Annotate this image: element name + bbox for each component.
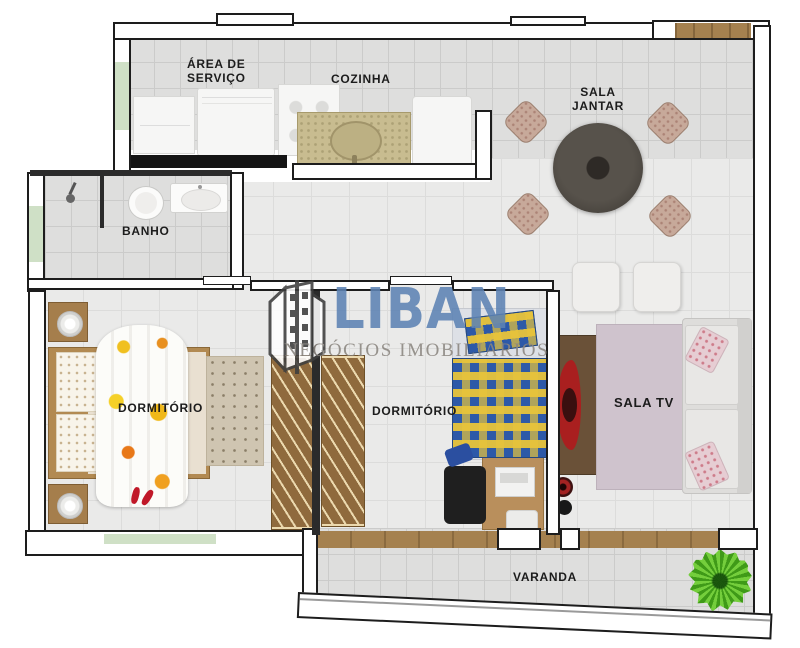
pouf-2 [633, 262, 681, 312]
granite-counter [297, 112, 411, 168]
office-chair [444, 466, 486, 524]
wall-banho-top [30, 170, 232, 176]
varanda-wall-nub-2 [560, 528, 580, 550]
nightstand-top [48, 302, 88, 342]
wardrobe-dorm2 [321, 355, 365, 527]
brand-text: LIBAN [332, 282, 511, 338]
wardrobe-dorm1 [271, 355, 313, 530]
varanda-wall-left [302, 528, 318, 602]
label-sala-tv: SALA TV [614, 396, 674, 410]
laptop [495, 467, 535, 497]
label-dormitorio-1: DORMITÓRIO [118, 401, 203, 415]
outer-wall-top-bump-1 [216, 13, 294, 26]
door-dorm1 [203, 276, 251, 285]
varanda-wall-nub-3 [718, 528, 758, 550]
window-dorm1 [104, 534, 216, 544]
wall-banho-right [230, 172, 244, 290]
floor-plan: ÁREA DE SERVIÇO COZINHA SALA JANTAR BANH… [0, 0, 800, 648]
sofa-backrest [737, 319, 751, 493]
kitchen-counter-L-vertical [475, 110, 492, 180]
lamp-bottom [57, 493, 83, 519]
tagline-text: NEGÓCIOS IMOBILIÁRIOS [284, 340, 549, 362]
pouf-1 [572, 262, 620, 312]
bed1-floral-blanket [96, 325, 188, 507]
label-area-servico: ÁREA DE SERVIÇO [187, 57, 246, 85]
shower-partition [100, 176, 104, 228]
label-cozinha: COZINHA [331, 72, 391, 86]
window-banho [29, 206, 43, 262]
entry-door-mat [675, 23, 751, 38]
round-dining-table [553, 123, 643, 213]
laundry-cabinet [133, 96, 195, 154]
toilet [128, 186, 164, 220]
refrigerator [412, 96, 472, 166]
rug-dorm1 [206, 356, 264, 466]
shower-head-icon [64, 182, 80, 204]
washing-machine [197, 88, 275, 156]
window-service [115, 62, 129, 130]
label-banho: BANHO [122, 224, 170, 238]
label-sala-jantar: SALA JANTAR [560, 85, 636, 113]
kitchen-counter-L-horizontal [292, 163, 490, 180]
outer-wall-left-dorm1 [28, 290, 46, 540]
label-dormitorio-2: DORMITÓRIO [372, 404, 457, 418]
nightstand-bottom [48, 484, 88, 524]
watermark: LIBAN NEGÓCIOS IMOBILIÁRIOS [260, 278, 560, 374]
sofa [682, 318, 752, 494]
label-varanda: VARANDA [513, 570, 577, 584]
service-counter-dark [130, 155, 287, 168]
outer-wall-top-bump-2 [510, 16, 586, 26]
bed1-pillow-2 [56, 414, 98, 472]
varanda-wall-nub-1 [497, 528, 541, 550]
bed1-pillow-1 [56, 352, 98, 412]
lamp-top [57, 311, 83, 337]
bathroom-sink [170, 183, 228, 213]
